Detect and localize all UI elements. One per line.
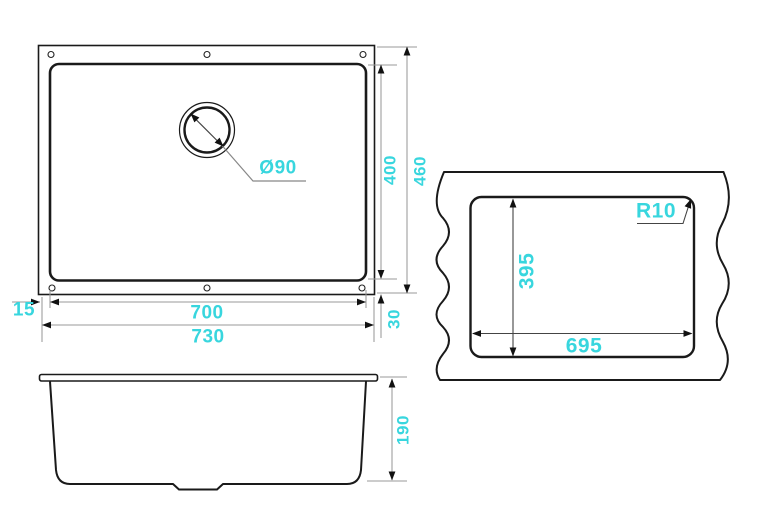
dim-label-outer-width: 730 bbox=[191, 328, 224, 347]
sink-outer-edge bbox=[39, 46, 375, 295]
dim-label-drain-diameter: Ø90 bbox=[259, 159, 296, 178]
dim-label-corner-radius: R10 bbox=[636, 201, 676, 222]
top-view-drawing bbox=[39, 46, 375, 295]
dim-label-inner-depth: 400 bbox=[382, 155, 399, 185]
side-view-drawing bbox=[40, 375, 378, 490]
sink-bowl-profile bbox=[50, 382, 366, 490]
dim-label-bowl-height: 190 bbox=[395, 415, 412, 445]
sink-rim-profile bbox=[40, 375, 378, 382]
dim-label-outer-depth: 460 bbox=[412, 156, 429, 186]
dim-label-inner-width: 700 bbox=[190, 304, 223, 323]
dim-label-rim-offset-left: 15 bbox=[13, 301, 35, 320]
sink-technical-drawing: Ø90 400 460 15 700 730 30 190 R10 395 69… bbox=[0, 0, 762, 521]
dim-label-cutout-depth: 395 bbox=[517, 253, 538, 290]
drawing-linework bbox=[0, 0, 762, 521]
dim-label-rim-offset-bottom: 30 bbox=[386, 309, 403, 329]
dim-label-cutout-width: 695 bbox=[566, 336, 603, 357]
